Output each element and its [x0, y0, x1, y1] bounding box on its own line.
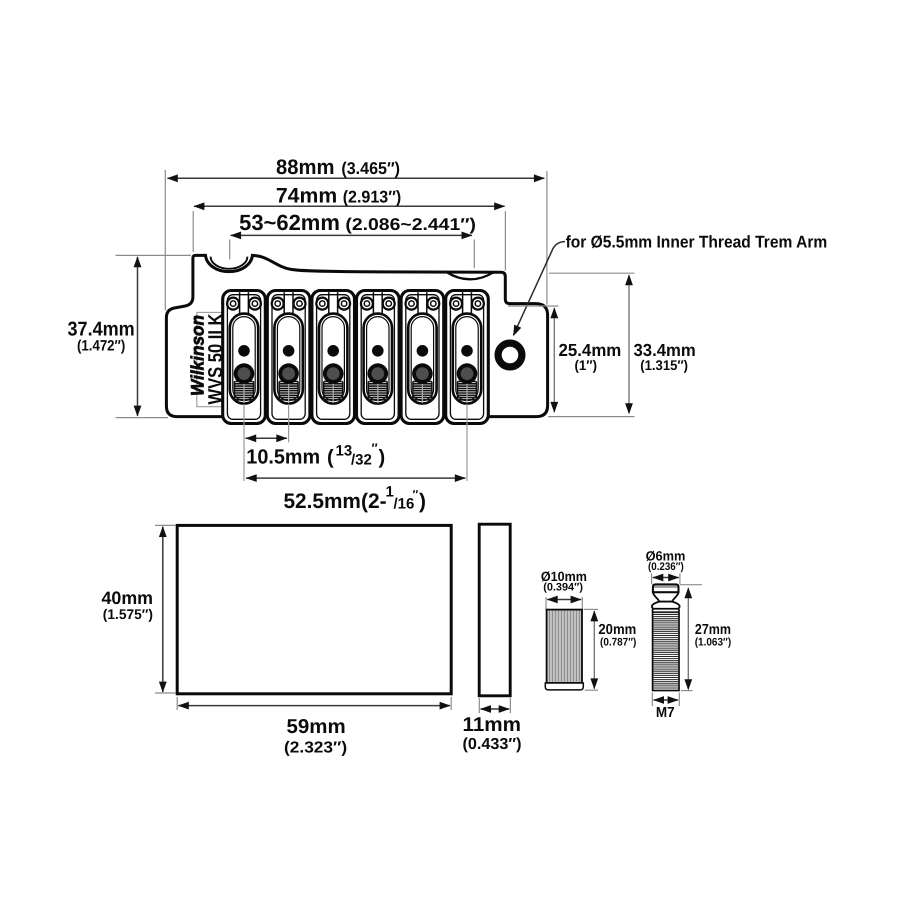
svg-text:(1″): (1″) [575, 357, 598, 373]
svg-text:/16: /16 [394, 496, 415, 513]
svg-text:(1.575″): (1.575″) [103, 606, 153, 622]
svg-text:″: ″ [372, 441, 378, 456]
svg-text:(2-: (2- [361, 490, 387, 513]
svg-text:(1.063″): (1.063″) [695, 636, 732, 648]
svg-text:13: 13 [336, 443, 353, 460]
svg-text:(: ( [327, 447, 334, 469]
svg-text:): ) [379, 447, 386, 469]
svg-text:11mm: 11mm [463, 714, 522, 736]
svg-text:): ) [419, 490, 426, 513]
svg-text:(1.472″): (1.472″) [77, 338, 125, 355]
svg-text:10.5mm: 10.5mm [246, 446, 320, 469]
svg-text:(2.323″): (2.323″) [284, 739, 347, 756]
svg-text:/32: /32 [351, 452, 372, 469]
svg-text:(3.465″): (3.465″) [341, 159, 400, 178]
svg-text:59mm: 59mm [287, 716, 346, 738]
svg-text:(1.315″): (1.315″) [640, 357, 688, 373]
svg-text:(2.086~2.441″): (2.086~2.441″) [345, 215, 476, 234]
svg-text:(0.236″): (0.236″) [648, 561, 684, 573]
svg-text:(0.787″): (0.787″) [600, 636, 637, 648]
svg-text:74mm: 74mm [276, 185, 337, 208]
svg-text:(2.913″): (2.913″) [343, 188, 402, 207]
svg-text:for Ø5.5mm Inner Thread Trem A: for Ø5.5mm Inner Thread Trem Arm [566, 233, 828, 252]
svg-text:M7: M7 [656, 705, 675, 721]
svg-text:″: ″ [413, 488, 419, 502]
svg-text:52.5mm: 52.5mm [284, 490, 361, 513]
svg-text:(0.394″): (0.394″) [543, 581, 583, 593]
svg-text:53~62mm: 53~62mm [239, 210, 340, 235]
svg-text:(0.433″): (0.433″) [463, 736, 522, 753]
svg-text:88mm: 88mm [276, 156, 335, 179]
